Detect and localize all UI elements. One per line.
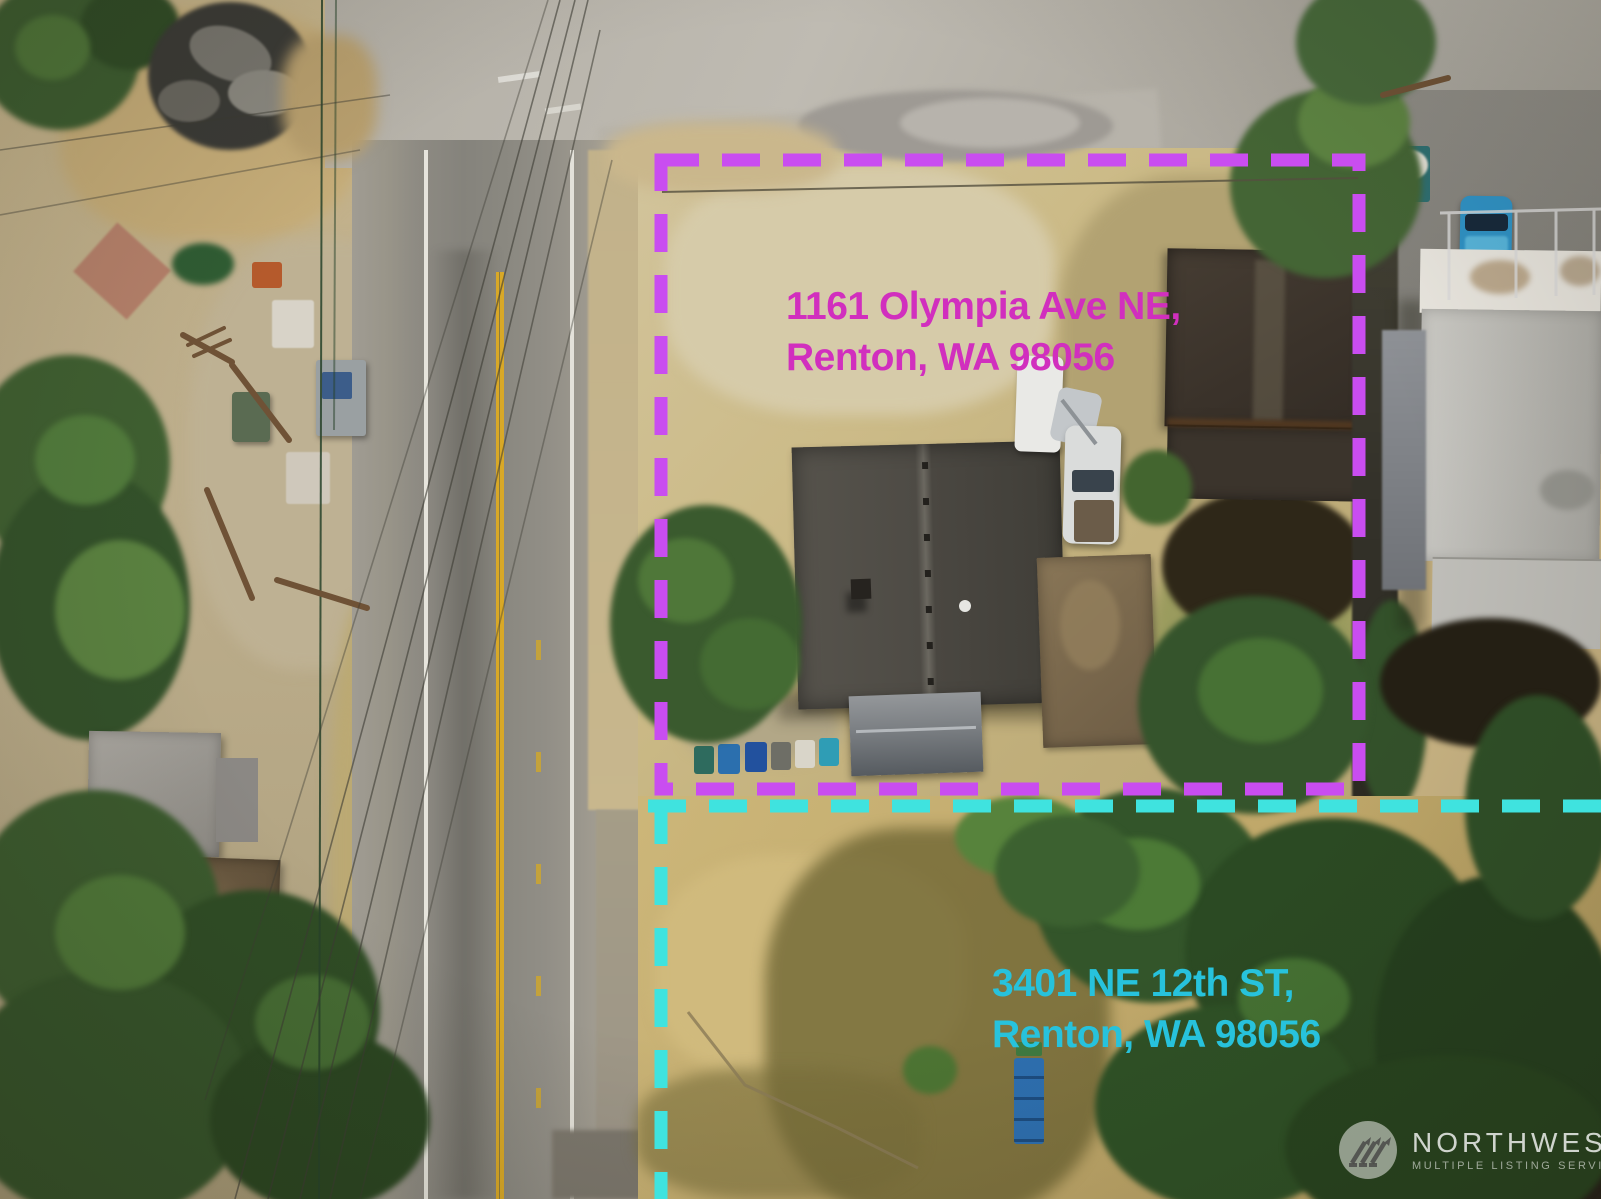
rubble-rocks-3 [158,80,220,122]
pickup-windshield [1072,470,1114,492]
road-yellow-center-line [496,272,504,1199]
trash-bin-4 [771,742,791,770]
tree-left-mid-accent [55,540,185,680]
dirt-mound-right-of-rubble [282,35,377,160]
trash-bin-5 [795,740,815,768]
trash-bin-6 [819,738,839,766]
road-white-line-right [570,150,574,1199]
overhang-tree-lot2 [995,815,1140,927]
pallet-boxes-2 [286,452,330,504]
road-dark-lane-streak [430,250,500,1199]
transformer-box-green [232,392,270,442]
nwmls-logo-icon [1338,1120,1398,1180]
nwmls-tagline: MULTIPLE LISTING SERVICE [1412,1160,1601,1172]
trash-bin-2 [718,744,740,774]
tree-bottomleft-accent2 [255,975,370,1070]
green-pipes [172,243,234,285]
shed-roof-moss [1060,580,1120,670]
tree-bottomleft-accent1 [55,875,185,990]
lot2-bush [903,1046,957,1094]
property2-address-line2: Renton, WA 98056 [992,1009,1321,1060]
lot2-blue-bins [1014,1058,1044,1144]
road-yellow-dashes [536,640,541,1199]
car-blue-windshield [1465,214,1508,231]
nwmls-brand: NORTHWEST [1412,1128,1601,1158]
tree-topleft-accent [15,15,90,80]
apartment-roof-stain-2 [1560,256,1600,286]
trash-bin-1 [694,746,714,774]
property1-address-line2: Renton, WA 98056 [786,332,1181,383]
carport-awning [849,692,984,777]
grey-house-annex [216,758,258,842]
nwmls-watermark: NORTHWEST MULTIPLE LISTING SERVICE [1338,1120,1601,1180]
pickup-bed [1074,500,1114,542]
lot2-tree-shadow-2 [636,1068,921,1199]
property2-address-label: 3401 NE 12th ST, Renton, WA 98056 [992,958,1321,1060]
conifer-6 [1465,695,1601,920]
apartment-roof-stain-3 [1540,470,1595,510]
road-white-line-left [424,150,428,1199]
roof-vent-cap [959,600,971,612]
neighbor-house-roof-lower [1166,424,1367,501]
orange-equipment [252,262,282,288]
pallet-boxes-1 [272,300,314,348]
neighbor-side-hedge [1122,450,1192,525]
tree-lot1-bottomright-accent [1198,638,1323,743]
trash-bin-3 [745,742,767,772]
property1-address-line1: 1161 Olympia Ave NE, [786,281,1181,332]
aerial-listing-photo: 1161 Olympia Ave NE, Renton, WA 98056 34… [0,0,1601,1199]
property2-address-line1: 3401 NE 12th ST, [992,958,1321,1009]
tree-lot1-left-accent [638,538,733,623]
tree-lot1-left-accent2 [700,618,800,710]
gravel-pile-light [900,98,1080,148]
tree-left-mid-accent2 [35,415,135,505]
apartment-roof-main [1418,309,1601,564]
sand-mound-top [606,122,836,192]
neighbor-roof-streak [1253,260,1286,420]
apartment-roof-stain-1 [1470,260,1530,294]
property1-address-label: 1161 Olympia Ave NE, Renton, WA 98056 [786,281,1181,383]
chimney [851,579,872,600]
apartment-wall-section [1382,330,1426,590]
nwmls-watermark-text: NORTHWEST MULTIPLE LISTING SERVICE [1412,1128,1601,1172]
solar-panel [322,372,352,399]
